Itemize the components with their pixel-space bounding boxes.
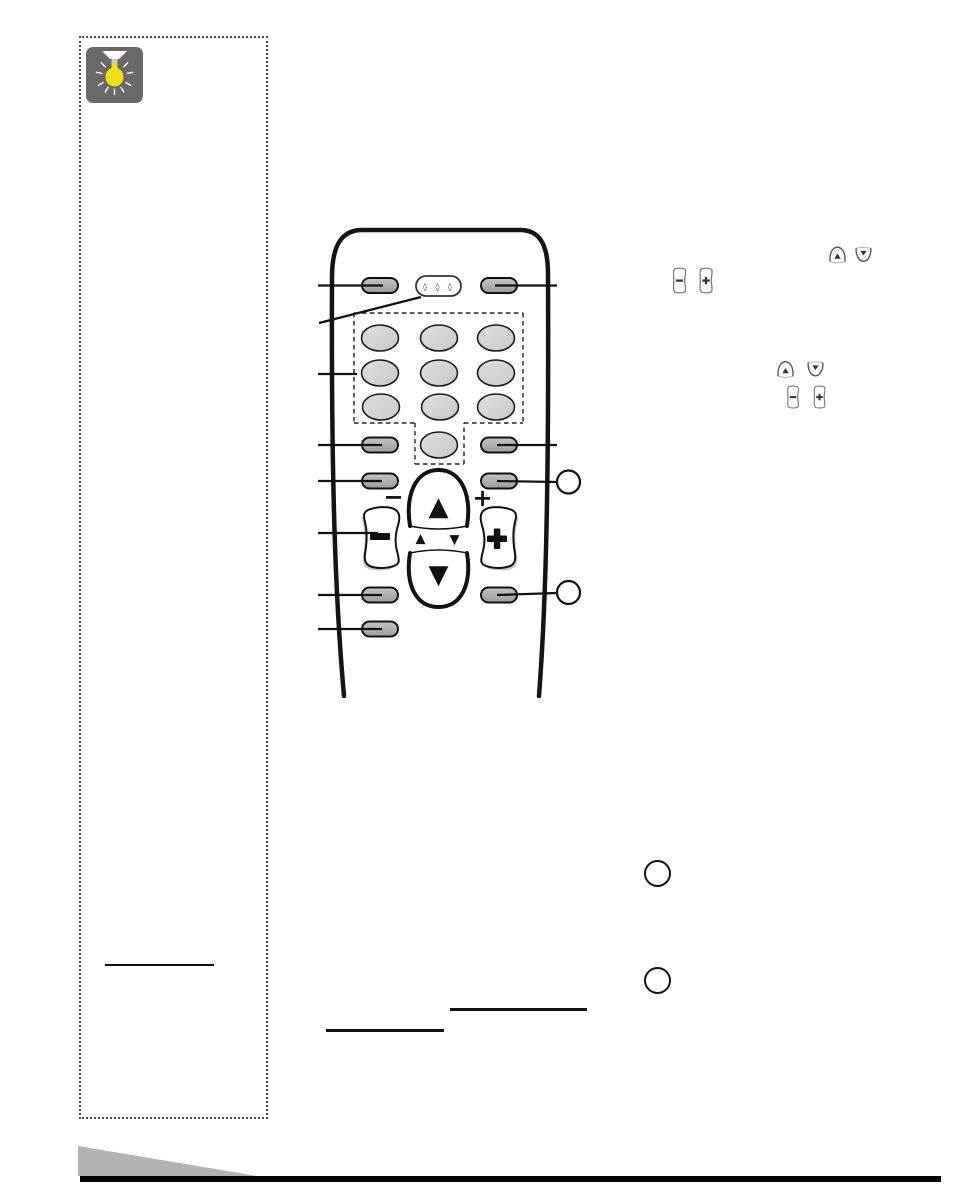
volume-plus-mini-icon (809, 385, 830, 409)
footer-triangle (78, 1146, 257, 1176)
volume-minus-mini-icon (783, 385, 803, 409)
volume-plus-mini-icon (696, 267, 716, 294)
display-dots: ◊ ◊ ◊ (423, 283, 455, 292)
up-arrow-glyph: ▲ (429, 492, 449, 522)
keypad-button (478, 325, 515, 351)
keypad-button (421, 432, 458, 458)
footer-rule-bar (80, 1176, 941, 1182)
keypad-button (478, 394, 515, 420)
channel-up-mini-icon (775, 359, 796, 379)
channel-down-mini-icon (853, 245, 874, 264)
channel-down-button: ▼ (409, 550, 468, 607)
manual-page: ◊ ◊ ◊ − + (0, 0, 965, 1185)
tip-sidebar (79, 36, 268, 1119)
channel-up-button: ▲ (409, 470, 468, 529)
keypad-button (478, 360, 515, 386)
bulb-shape (106, 68, 124, 87)
keypad-button (421, 325, 458, 351)
step-circle-1 (644, 860, 671, 887)
keypad-button (422, 394, 459, 420)
volume-minus-hint-label: − (383, 483, 403, 511)
sidebar-divider-rule (105, 964, 214, 966)
callout-circle-2 (557, 581, 580, 604)
underline-rule-1 (450, 1008, 587, 1011)
small-up-arrow-glyph: ▲ (416, 532, 426, 547)
volume-minus-mini-icon (670, 267, 689, 294)
volume-plus-button (481, 507, 518, 570)
lightbulb-icon (86, 47, 143, 103)
small-down-arrow-glyph: ▼ (450, 533, 460, 548)
volume-plus-hint-label: + (472, 484, 492, 512)
channel-down-mini-icon (805, 359, 826, 379)
keypad-button (362, 325, 399, 351)
keypad-button (362, 360, 399, 386)
callout-circle-1 (557, 471, 580, 494)
callout-line-right-3 (497, 481, 557, 482)
down-arrow-glyph: ▼ (429, 560, 449, 590)
keypad-button (363, 394, 400, 420)
channel-up-mini-icon (827, 245, 848, 264)
volume-minus-button (362, 507, 399, 570)
underline-rule-2 (326, 1029, 444, 1032)
step-circle-2 (644, 967, 671, 994)
keypad-button (421, 360, 458, 386)
remote-control-diagram: ◊ ◊ ◊ − + (300, 222, 600, 712)
